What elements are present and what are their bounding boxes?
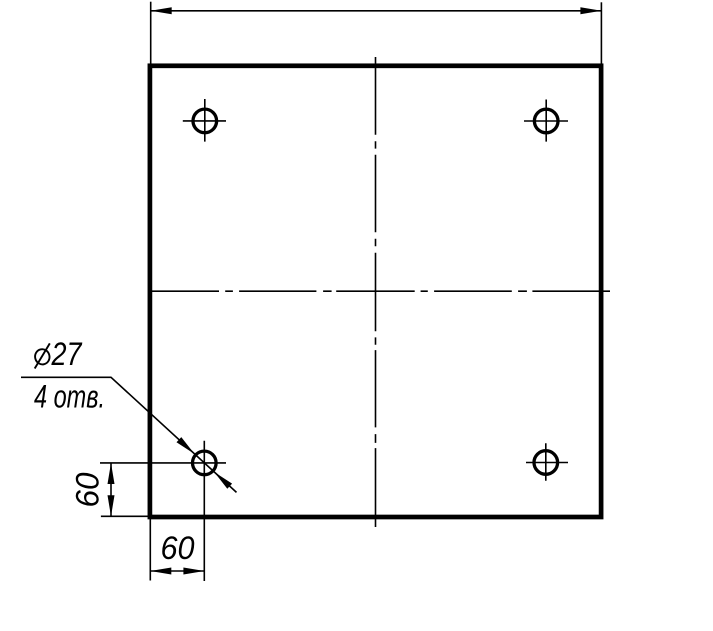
svg-text:60: 60 bbox=[161, 530, 195, 566]
svg-text:27: 27 bbox=[51, 336, 83, 372]
svg-text:60: 60 bbox=[70, 473, 106, 508]
svg-text:4 отв.: 4 отв. bbox=[34, 379, 105, 415]
